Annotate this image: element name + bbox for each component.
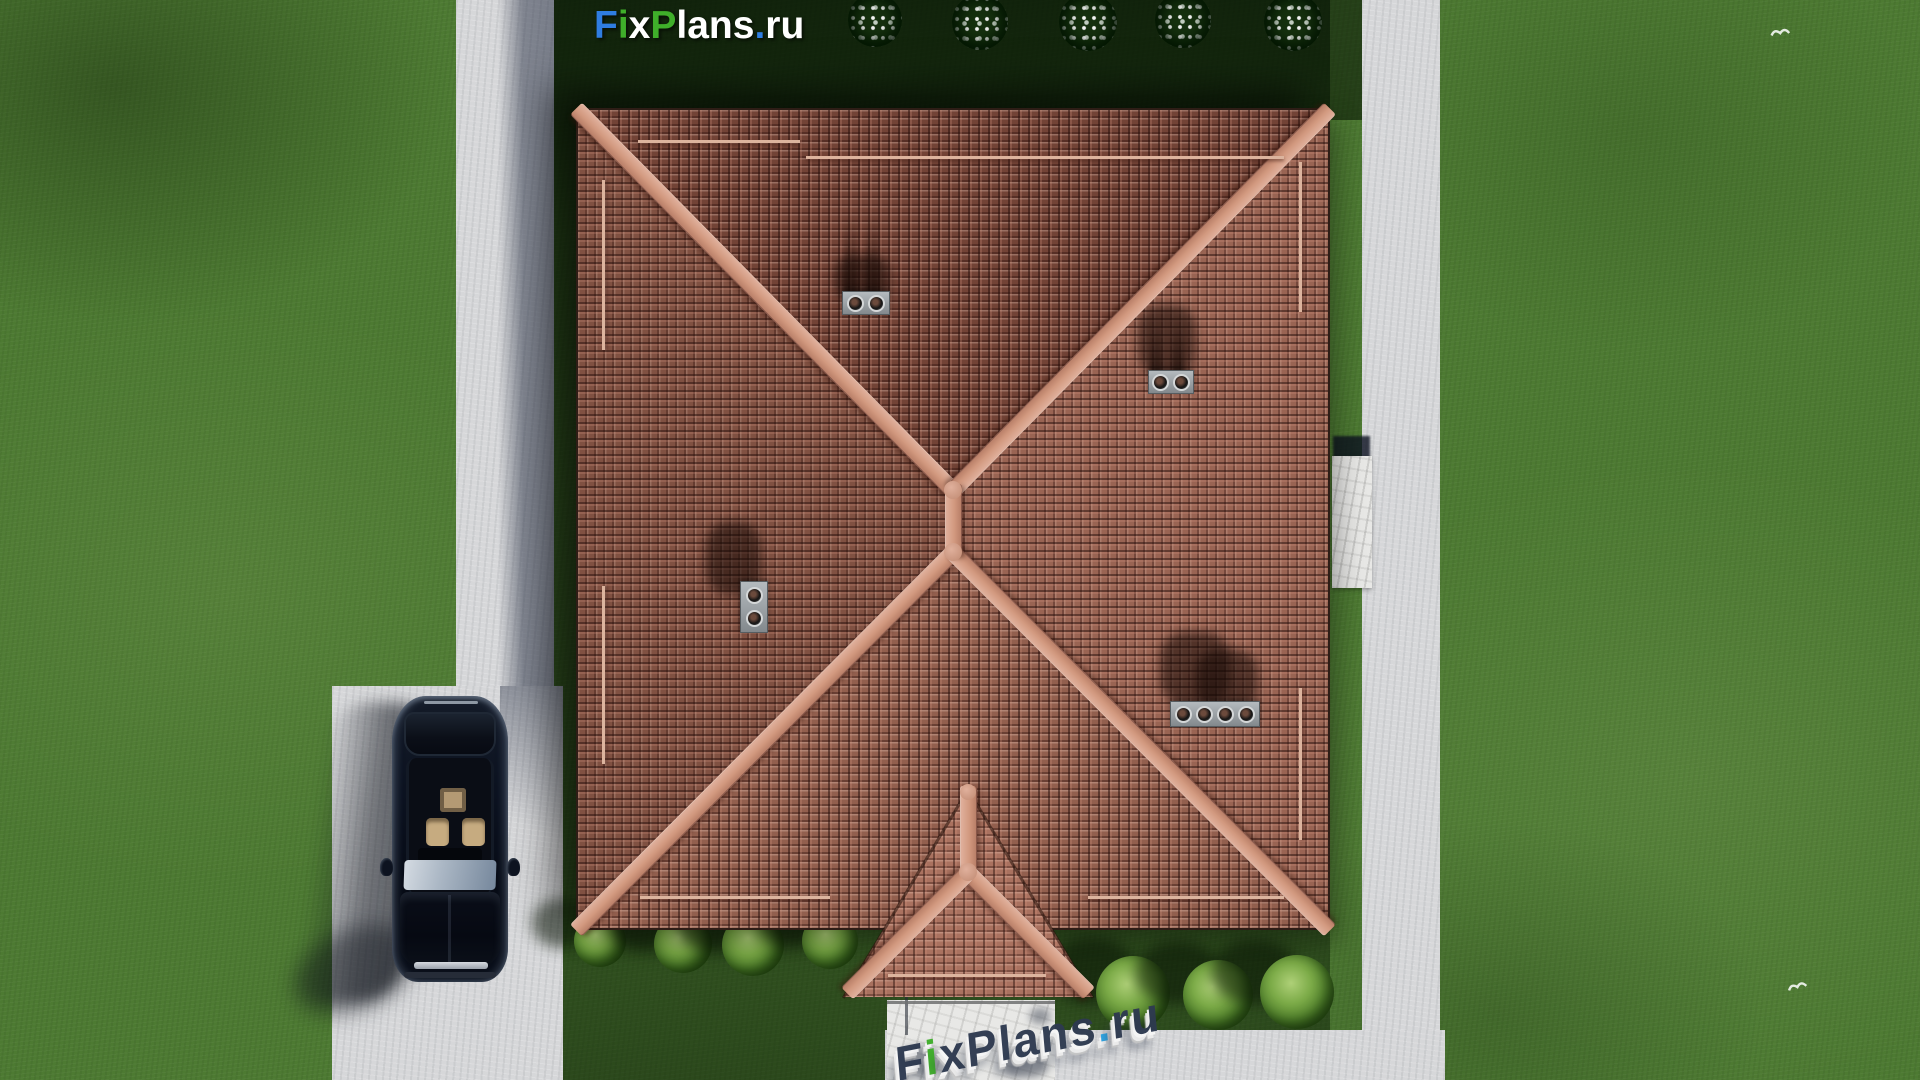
brand-letter: P (964, 1017, 1001, 1078)
vent-pipe-icon (1175, 706, 1192, 723)
vent-pipe-icon (847, 295, 864, 312)
concrete-path-right (1362, 0, 1440, 1080)
snow-rail (1299, 162, 1302, 312)
snow-rail (1088, 896, 1284, 899)
site-logo: FixPlans.ru (594, 4, 804, 48)
vent-pipe-icon (1196, 706, 1213, 723)
chimney-soot (1138, 305, 1196, 375)
snow-rail (602, 180, 605, 350)
car-seat (462, 818, 485, 846)
car-mirror (507, 858, 520, 876)
entrance-step-edge (887, 1001, 1055, 1004)
brand-letter: i (618, 4, 629, 47)
snow-rail (640, 896, 830, 899)
ridge-node (959, 863, 977, 881)
ridge-node (960, 784, 976, 800)
stone-side-element (1332, 456, 1372, 588)
car-mirror (380, 858, 393, 876)
snow-rail (888, 974, 1046, 977)
brand-letter: . (754, 4, 765, 47)
car-bumper (404, 972, 496, 978)
chimney-soot-streak (1172, 318, 1184, 373)
car-windshield-reflection (403, 860, 496, 890)
car-hood-crease (448, 895, 451, 965)
chimney-vent-box (1148, 370, 1194, 394)
car-rear-window (404, 712, 496, 756)
vent-pipe-icon (1173, 374, 1190, 391)
chimney-soot (1196, 650, 1258, 708)
ridge-node (944, 543, 962, 561)
vent-pipe-icon (1152, 374, 1169, 391)
house-shadow-overlay-corner (1330, 0, 1364, 120)
vent-pipe-icon (1238, 706, 1255, 723)
chimney-vent-box (842, 291, 890, 315)
vent-pipe-icon (746, 587, 763, 604)
car-grille (414, 962, 488, 969)
vent-pipe-icon (868, 295, 885, 312)
chimney-vent-box (1170, 701, 1260, 727)
garden-bush (1260, 955, 1334, 1029)
car-center-console (440, 788, 466, 812)
house-aerial-render: FixPlans.ru FixPlans.ru (0, 0, 1920, 1080)
vent-pipe-icon (746, 610, 763, 627)
stone-element-shadow (1333, 436, 1370, 458)
chimney-soot-streak (1150, 316, 1162, 374)
car-seat (426, 818, 449, 846)
brand-letter: ru (765, 4, 804, 47)
brand-letter: x (629, 4, 651, 47)
car-trunk-chrome (424, 701, 478, 704)
brand-letter: lans (676, 4, 754, 47)
brand-letter: F (594, 4, 618, 47)
ridge-node (944, 481, 962, 499)
snow-rail (806, 156, 1284, 159)
snow-rail (638, 140, 800, 143)
brand-letter: P (650, 4, 676, 47)
snow-rail (602, 586, 605, 764)
snow-rail (1299, 688, 1302, 840)
vent-pipe-icon (1217, 706, 1234, 723)
brand-letter: ru (1109, 986, 1163, 1050)
path-left-shadow (498, 0, 554, 690)
chimney-vent-box (740, 581, 768, 633)
